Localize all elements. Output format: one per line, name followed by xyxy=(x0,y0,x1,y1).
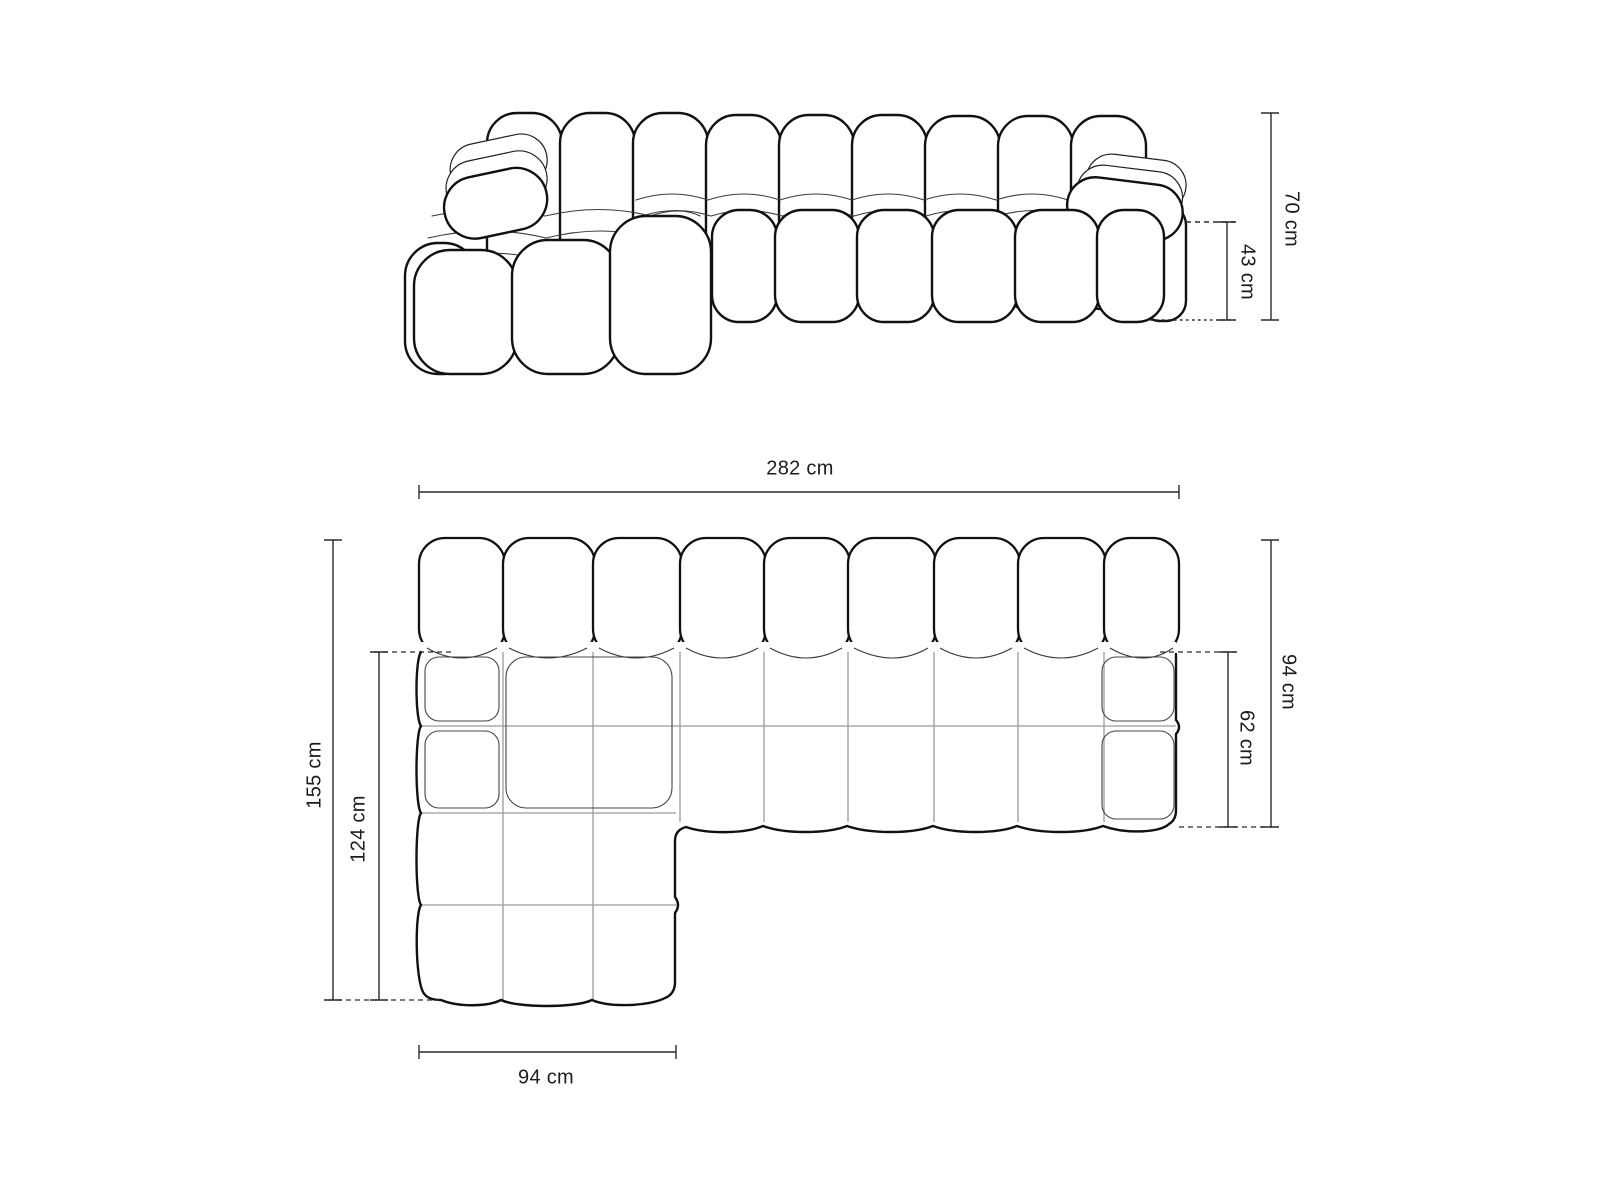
diagram-canvas xyxy=(0,0,1600,1200)
dim-label-chaise-total-length: 155 cm xyxy=(304,741,327,808)
top-backrest-cushions xyxy=(419,538,1179,655)
top-dim-chaise-width xyxy=(419,1045,676,1059)
front-seat-cushions xyxy=(712,210,1164,322)
dim-label-total-width: 282 cm xyxy=(766,458,833,481)
front-chaise-cushions xyxy=(405,216,711,374)
dim-label-seat-height: 43 cm xyxy=(1236,244,1259,300)
top-dim-chaise-inner-length xyxy=(370,652,388,1000)
dim-label-chaise-inner-length: 124 cm xyxy=(348,795,371,862)
front-view-drawing xyxy=(405,113,1189,374)
top-body-fill xyxy=(421,642,1176,1000)
dim-label-total-height: 70 cm xyxy=(1280,191,1303,247)
dim-label-seat-depth: 62 cm xyxy=(1235,710,1258,766)
sofa-dimension-diagram: 70 cm 43 cm 282 cm 94 cm 62 cm 155 cm 12… xyxy=(0,0,1600,1200)
top-dim-total-width xyxy=(419,485,1179,499)
front-dim-seat-height xyxy=(1218,222,1236,320)
dim-label-chaise-width: 94 cm xyxy=(518,1067,574,1090)
top-dim-chaise-total-length xyxy=(324,540,342,1000)
front-dim-total-height xyxy=(1261,113,1279,320)
dim-label-total-depth: 94 cm xyxy=(1277,654,1300,710)
top-view-drawing xyxy=(324,485,1279,1059)
